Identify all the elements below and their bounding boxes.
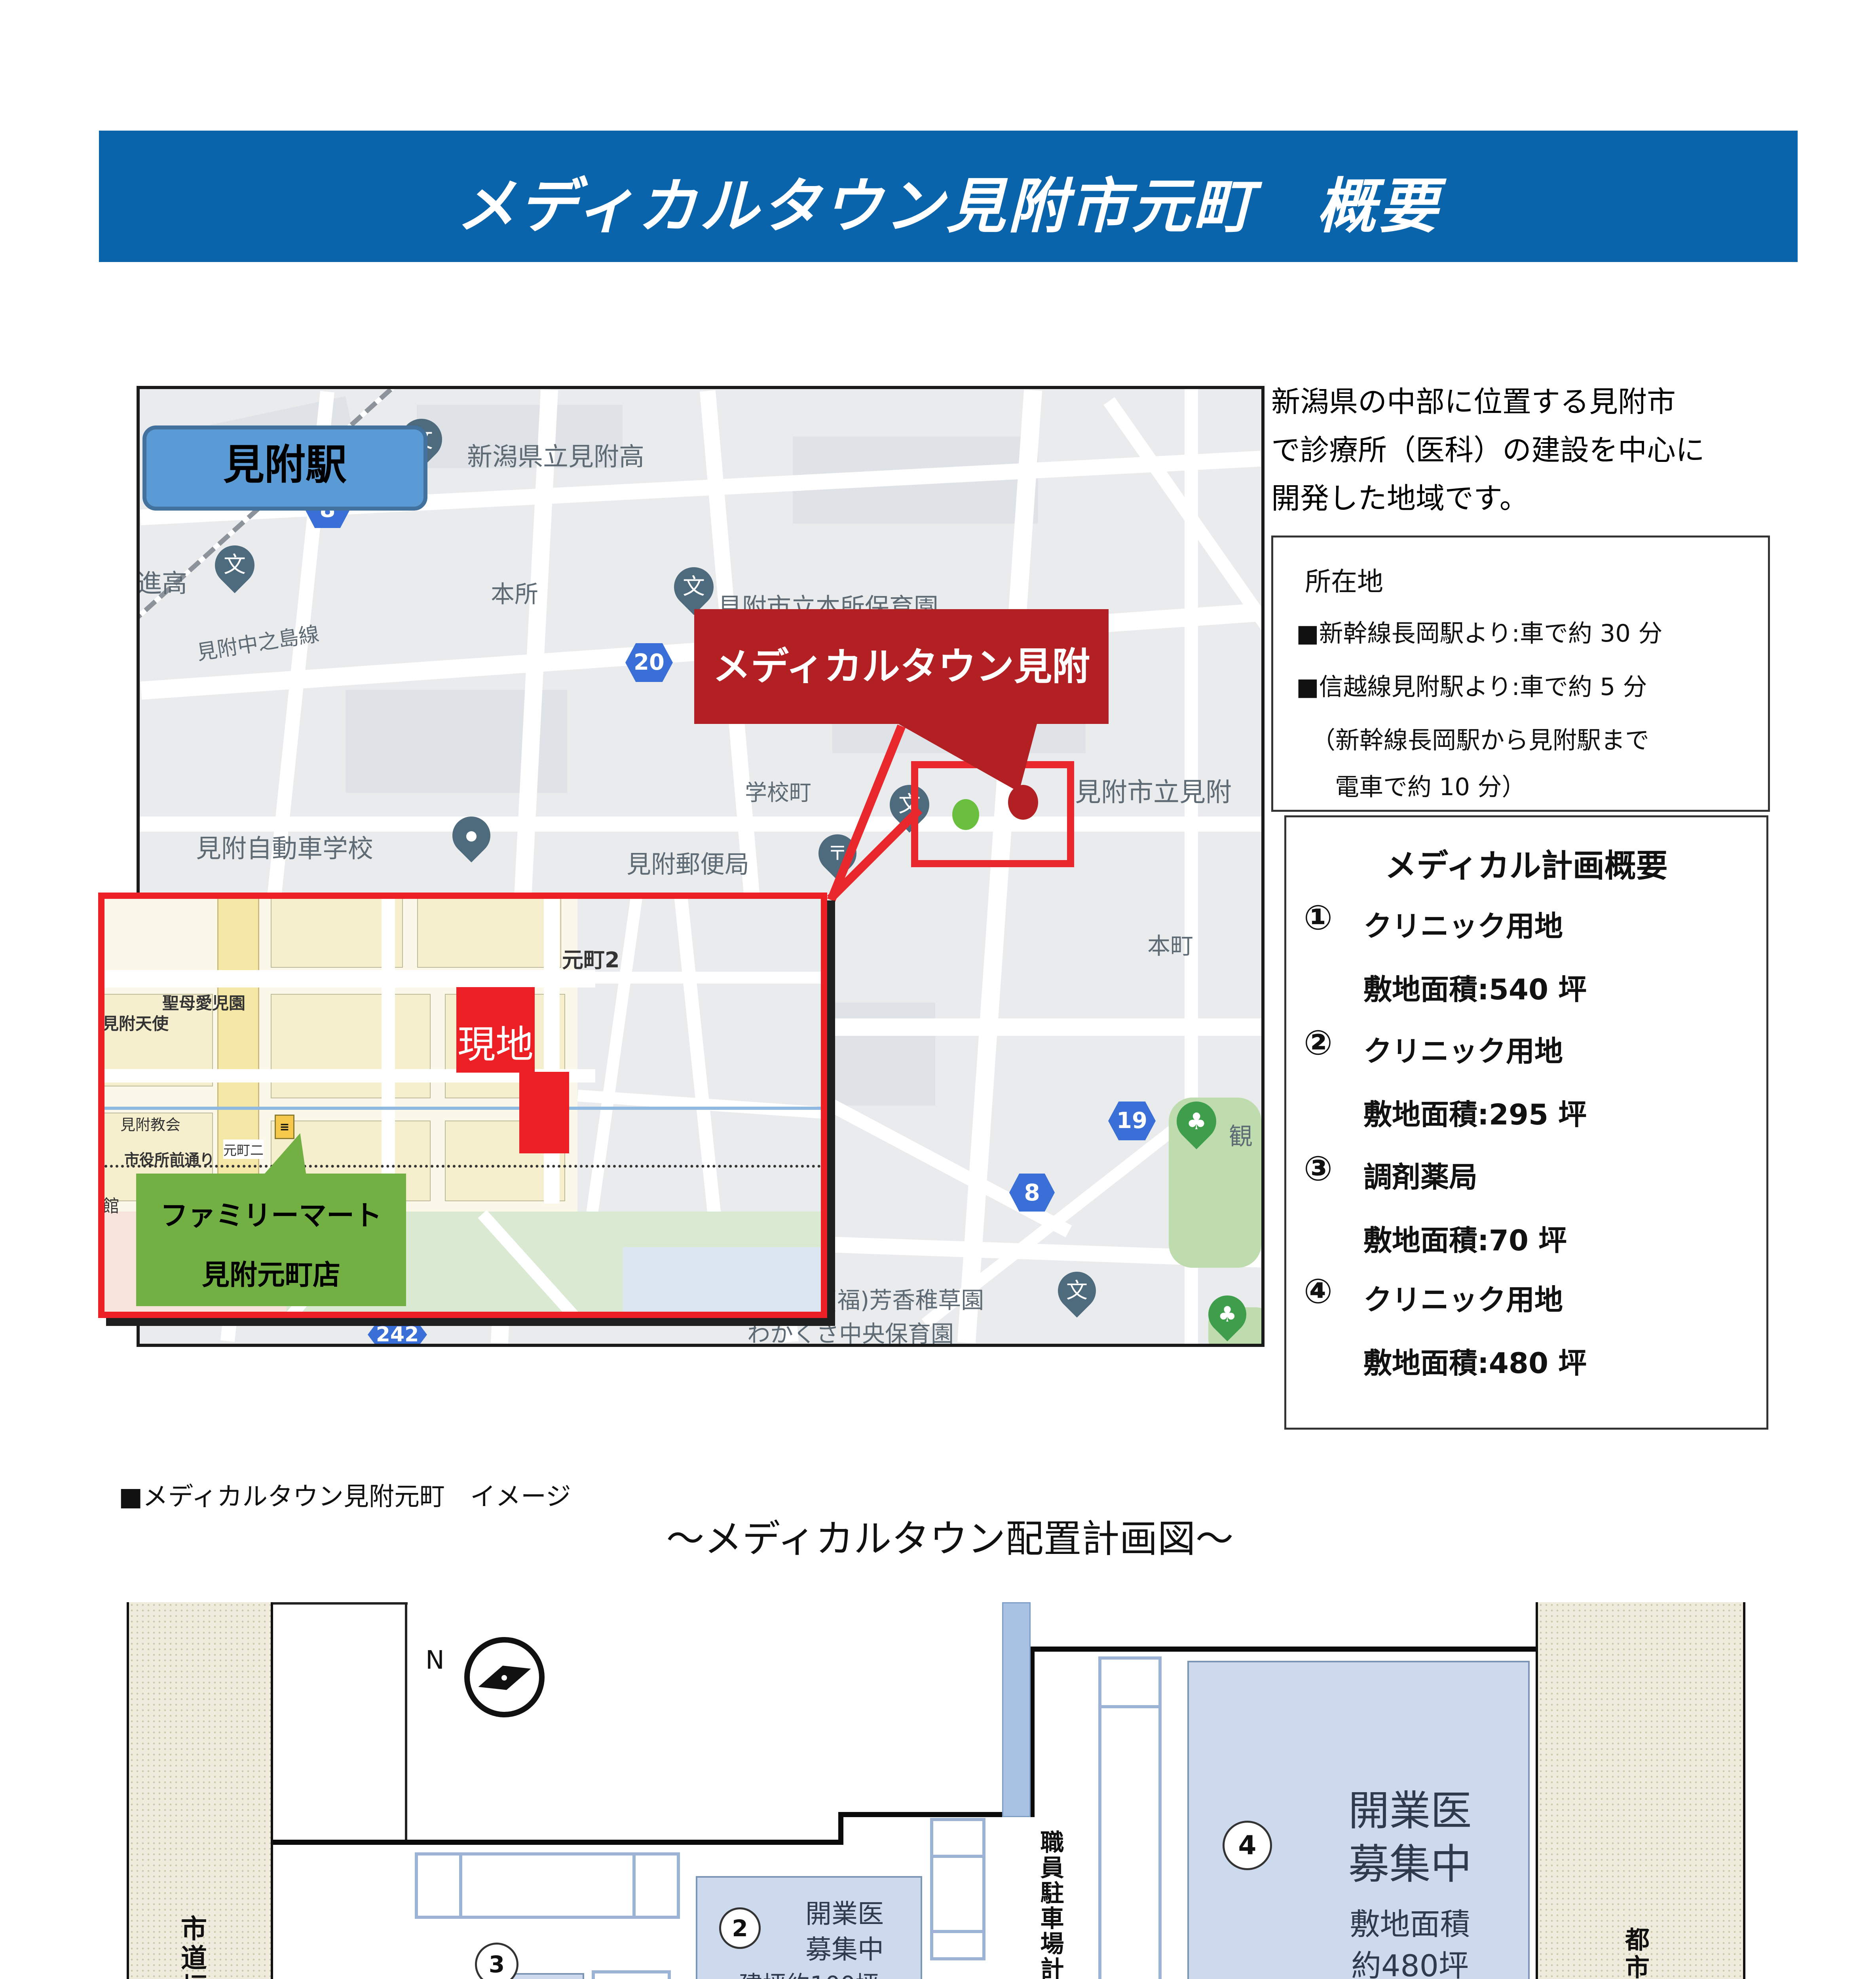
inset-label-tenshi: 見附天使 xyxy=(102,1010,169,1035)
inset-label-kan: 館 xyxy=(102,1192,120,1217)
inset-road xyxy=(544,899,560,1204)
internal-road-strip xyxy=(1002,1602,1031,1817)
building-4-line1: 開業医 xyxy=(1189,1777,1580,1837)
familymart-line2: 見附元町店 xyxy=(136,1253,406,1293)
location-line1: ■新幹線長岡駅より:車で約 30 分 xyxy=(1296,613,1662,649)
plan-item-1-no: ① xyxy=(1304,898,1333,938)
station-label: 見附駅 xyxy=(142,425,427,511)
inset-label-shiyakusho: 市役所前通り xyxy=(124,1147,215,1169)
plan-item-1-area: 敷地面積:540 坪 xyxy=(1363,966,1587,1008)
inset-block xyxy=(271,994,431,1098)
label-gakkocho: 学校町 xyxy=(745,775,811,807)
building-4-line3: 敷地面積 xyxy=(1189,1900,1580,1943)
medical-plan-box: メディカル計画概要 ① クリニック用地 敷地面積:540 坪 ② クリニック用地… xyxy=(1284,815,1768,1430)
plan-item-3-area: 敷地面積:70 坪 xyxy=(1363,1217,1567,1259)
school-pin-icon: 文 xyxy=(207,537,262,593)
plan-item-4-area: 敷地面積:480 坪 xyxy=(1363,1340,1587,1381)
inset-label-motomachi-ni: 元町二 xyxy=(223,1140,264,1159)
inset-label-seibo: 聖母愛児園 xyxy=(162,990,245,1014)
site-boundary xyxy=(273,1840,843,1845)
label-honcho: 本町 xyxy=(1147,927,1193,961)
genchi-label: 現地 xyxy=(449,1014,542,1069)
conbini-icon: ≡ xyxy=(275,1115,294,1139)
plan-item-2-label: クリニック用地 xyxy=(1363,1028,1563,1069)
building-4: 4 開業医 募集中 敷地面積 約480坪 xyxy=(1187,1661,1530,1979)
parking-row xyxy=(592,1970,671,1979)
compass-center-dot xyxy=(501,1675,507,1681)
label-post-office: 見附郵便局 xyxy=(627,844,749,880)
intro-text: 新潟県の中部に位置する見附市 で診療所（医科）の建設を中心に 開発した地域です。 xyxy=(1271,378,1778,523)
inset-river xyxy=(104,1107,821,1110)
label-shinko: 進高 xyxy=(137,563,187,600)
label-high-school: 新潟県立見附高 xyxy=(467,437,644,473)
medical-town-callout: メディカルタウン見附 xyxy=(694,609,1109,724)
inset-road xyxy=(104,970,595,988)
building-2-line1: 開業医 xyxy=(697,1893,956,1931)
place-pin-icon: ● xyxy=(444,809,498,862)
intro-line3: 開発した地域です。 xyxy=(1271,475,1778,523)
inset-block xyxy=(417,895,561,968)
school-pin-icon: 文 xyxy=(666,559,722,615)
staff-parking-label: 職員駐車場計２５台 xyxy=(1033,1830,1067,1979)
left-road: 市道幅員５ｍ～６ｍ xyxy=(127,1602,273,1979)
plan-item-1-label: クリニック用地 xyxy=(1363,903,1563,944)
building-2-line3: 建坪約100坪 xyxy=(697,1966,921,1979)
plan-item-2-area: 敷地面積:295 坪 xyxy=(1363,1091,1587,1133)
site-plan-figure: 市道幅員５ｍ～６ｍ 都市計画道路１２ｍ N 職員駐車場計２５台 xyxy=(127,1602,1749,1979)
park-pin-icon: ♣ xyxy=(1168,1093,1224,1149)
plan-item-4-no: ④ xyxy=(1304,1272,1333,1311)
familymart-callout: ファミリーマート 見附元町店 xyxy=(136,1174,406,1306)
familymart-line1: ファミリーマート xyxy=(136,1193,406,1233)
plan-item-4-label: クリニック用地 xyxy=(1363,1276,1563,1318)
plan-item-3-no: ③ xyxy=(1304,1149,1333,1189)
section-plan-title: ～メディカルタウン配置計画図～ xyxy=(554,1508,1346,1563)
header-banner: メディカルタウン見附市元町 概要 xyxy=(99,131,1798,262)
station-label-text: 見附駅 xyxy=(146,429,423,500)
section-bullet-title: ■メディカルタウン見附元町 イメージ xyxy=(119,1476,571,1513)
building-2: 2 開業医 募集中 建坪約100坪 xyxy=(696,1876,922,1979)
site-boundary xyxy=(1029,1647,1536,1652)
parcel-line xyxy=(273,1602,408,1605)
location-title: 所在地 xyxy=(1305,560,1383,598)
right-road-label: 都市計画道路１２ｍ xyxy=(1617,1927,1653,1979)
route-badge-242: 242 xyxy=(368,1317,427,1347)
intro-line2: で診療所（医科）の建設を中心に xyxy=(1271,426,1778,475)
label-driving-school: 見附自動車学校 xyxy=(196,828,373,865)
location-line2: ■信越線見附駅より:車で約 5 分 xyxy=(1296,667,1647,702)
medical-town-callout-text: メディカルタウン見附 xyxy=(694,609,1109,724)
plan-item-2-no: ② xyxy=(1304,1023,1333,1063)
building-2-line2: 募集中 xyxy=(697,1928,956,1966)
inset-road xyxy=(478,1210,582,1318)
inset-label-motomachi2: 元町2 xyxy=(562,942,620,974)
location-line4: 電車で約 10 分） xyxy=(1335,767,1526,802)
inset-road xyxy=(382,899,395,1204)
site-red-dot xyxy=(1008,785,1038,820)
intro-line1: 新潟県の中部に位置する見附市 xyxy=(1271,378,1778,426)
building-3-number: 3 xyxy=(475,1943,518,1979)
building-4-line4: 約480坪 xyxy=(1189,1941,1580,1979)
parking-row xyxy=(1098,1656,1162,1979)
medical-plan-title: メディカル計画概要 xyxy=(1286,840,1766,886)
genchi-site-shape xyxy=(519,1072,569,1153)
plan-item-3-label: 調剤薬局 xyxy=(1363,1154,1477,1195)
route-badge-19: 19 xyxy=(1108,1102,1156,1140)
page-title: メディカルタウン見附市元町 概要 xyxy=(99,158,1798,244)
site-green-dot xyxy=(952,799,979,830)
label-yoshika: (福)芳香稚草園 xyxy=(828,1282,984,1315)
inset-blue-zone xyxy=(623,1247,821,1312)
school-pin-icon: 文 xyxy=(1050,1264,1104,1318)
north-letter: N xyxy=(425,1646,444,1675)
location-line3: （新幹線長岡駅から見附駅まで xyxy=(1311,720,1649,756)
label-honjo: 本所 xyxy=(491,575,538,610)
parcel-line xyxy=(405,1602,407,1844)
location-box: 所在地 ■新幹線長岡駅より:車で約 30 分 ■信越線見附駅より:車で約 5 分… xyxy=(1271,536,1770,812)
parking-row xyxy=(415,1852,680,1919)
inset-map: 現地 ≡ 元町2 聖母愛児園 見附天使 見附教会 市役所前通り 元町二 館 ファ… xyxy=(98,893,827,1318)
building-4-line2: 募集中 xyxy=(1189,1831,1580,1890)
site-boundary xyxy=(838,1812,1004,1817)
label-kanko: 観 xyxy=(1229,1117,1253,1152)
compass-icon xyxy=(464,1637,545,1717)
park-pin-icon: ♣ xyxy=(1200,1288,1254,1341)
inset-label-kyokai: 見附教会 xyxy=(120,1113,180,1134)
left-road-label: 市道幅員５ｍ～６ｍ xyxy=(173,1915,211,1979)
map-road xyxy=(1103,397,1265,632)
label-mitsuke-elementary: 見附市立見附 xyxy=(1075,771,1232,809)
label-wakakusa: わかくさ中央保育園 xyxy=(747,1315,954,1347)
